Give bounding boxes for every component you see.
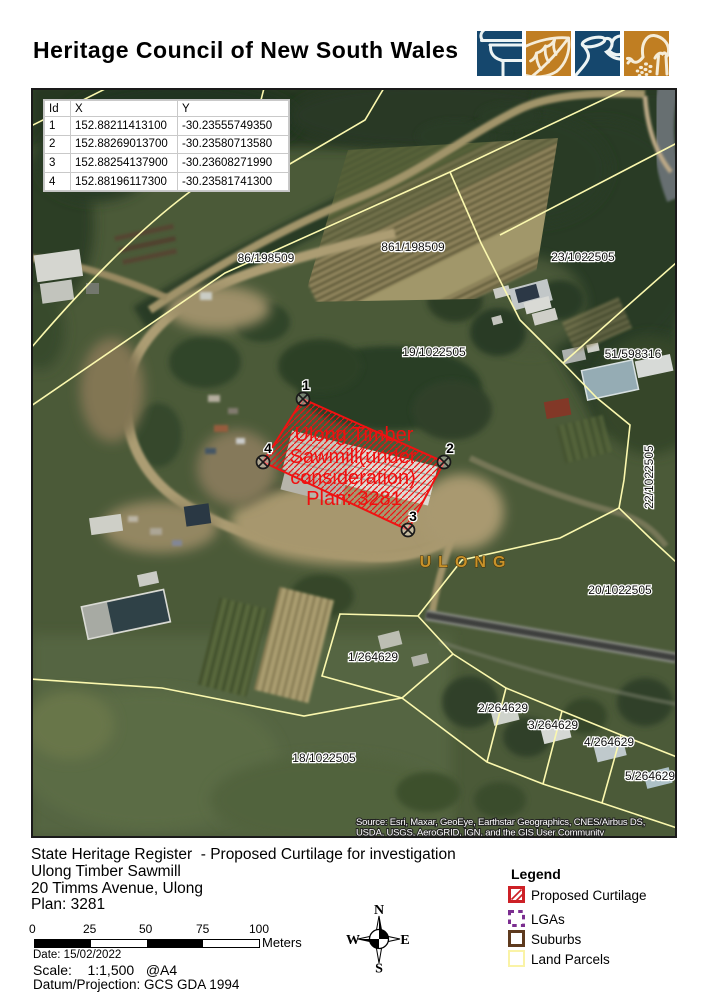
svg-text:5/264629: 5/264629	[625, 769, 675, 783]
svg-text:S: S	[375, 962, 383, 977]
svg-text:22/1022505: 22/1022505	[642, 445, 656, 509]
svg-text:3/264629: 3/264629	[528, 718, 578, 732]
svg-text:USDA, USGS, AeroGRID, IGN, and: USDA, USGS, AeroGRID, IGN, and the GIS U…	[356, 828, 605, 837]
svg-text:Ulong Timber: Ulong Timber	[295, 424, 414, 446]
svg-text:4: 4	[264, 440, 272, 456]
svg-text:861/198509: 861/198509	[381, 240, 445, 254]
svg-text:20/1022505: 20/1022505	[588, 583, 652, 597]
svg-text:2/264629: 2/264629	[478, 701, 528, 715]
svg-text:Sawmill(under: Sawmill(under	[290, 446, 417, 468]
svg-text:E: E	[400, 933, 409, 948]
svg-text:consideration): consideration)	[290, 467, 416, 489]
svg-text:3: 3	[409, 508, 417, 524]
svg-text:ULONG: ULONG	[420, 554, 513, 571]
svg-text:1/264629: 1/264629	[348, 650, 398, 664]
svg-text:2: 2	[446, 440, 454, 456]
svg-text:4/264629: 4/264629	[584, 735, 634, 749]
svg-text:86/198509: 86/198509	[238, 251, 295, 265]
svg-text:N: N	[374, 903, 384, 918]
svg-text:Source: Esri, Maxar, GeoEye, E: Source: Esri, Maxar, GeoEye, Earthstar G…	[356, 817, 645, 828]
svg-text:51/598316: 51/598316	[605, 347, 662, 361]
svg-text:1: 1	[302, 377, 310, 393]
svg-text:Plan: 3281: Plan: 3281	[306, 488, 402, 510]
svg-text:W: W	[346, 933, 360, 948]
svg-text:19/1022505: 19/1022505	[402, 345, 466, 359]
svg-text:18/1022505: 18/1022505	[292, 751, 356, 765]
svg-text:23/1022505: 23/1022505	[551, 250, 615, 264]
